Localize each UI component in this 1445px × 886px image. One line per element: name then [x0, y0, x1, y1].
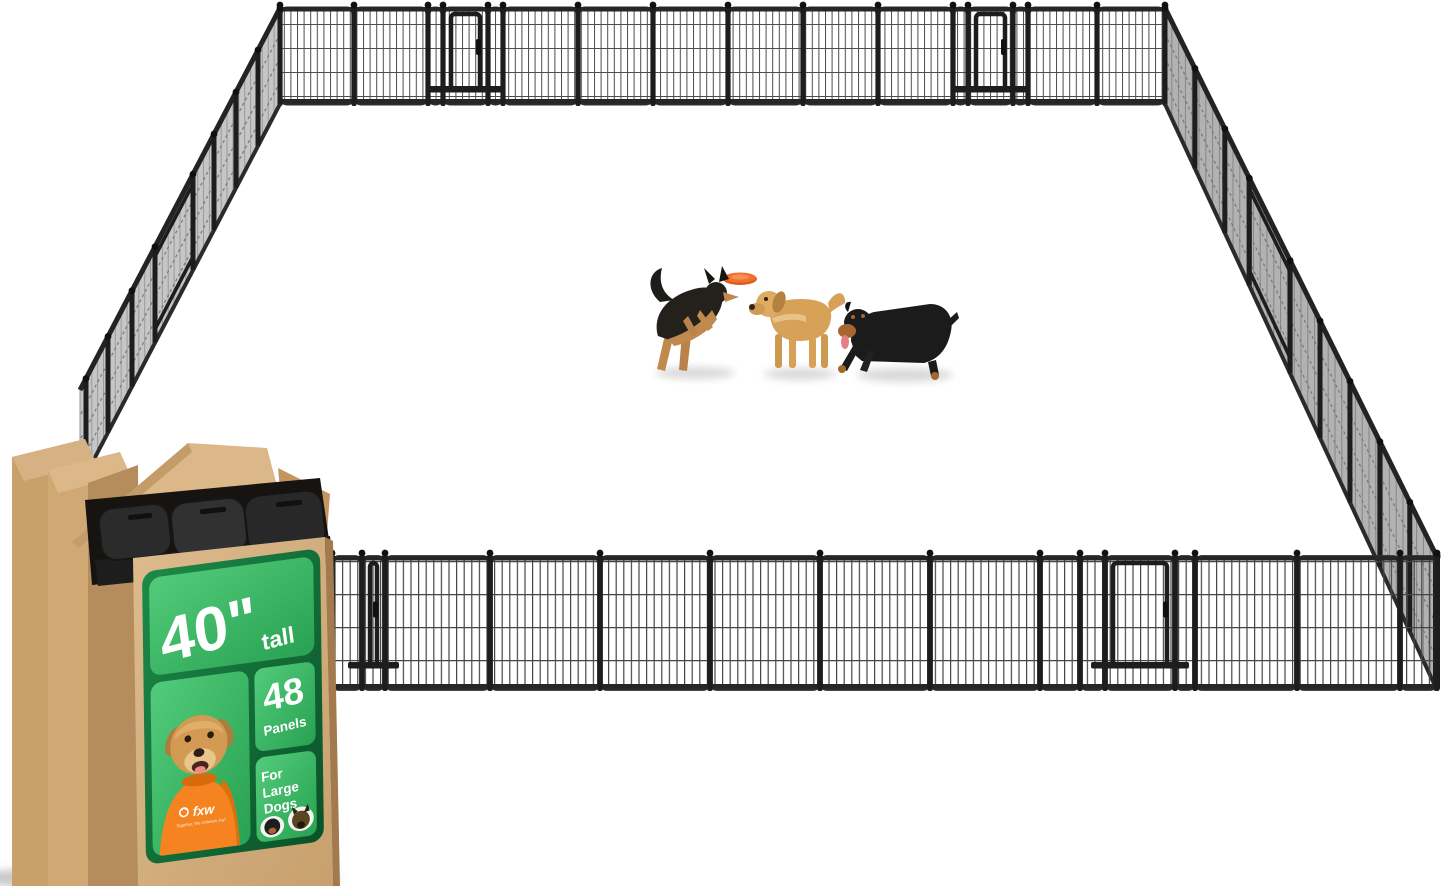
dogs-playing	[650, 266, 959, 382]
product-photo: 40" tall	[0, 0, 1445, 886]
golden-retriever-figure	[749, 290, 845, 368]
shadow	[655, 367, 735, 379]
box-label: 40" tall	[142, 548, 324, 865]
audience-badge: For Large Dogs	[256, 750, 317, 843]
shadow	[764, 368, 836, 380]
playpen-scene: 40" tall	[0, 0, 1445, 886]
panel-count-badge: 48 Panels	[254, 661, 315, 752]
product-box-stack: 40" tall	[0, 439, 340, 886]
front-fence-row	[329, 550, 1441, 691]
left-fence-row	[80, 5, 283, 486]
brand-on-shirt: fxw	[193, 801, 215, 819]
golden-retriever-photo: fxw Together, We Unleash Joy!	[150, 670, 250, 857]
back-fence-row	[277, 2, 1169, 106]
